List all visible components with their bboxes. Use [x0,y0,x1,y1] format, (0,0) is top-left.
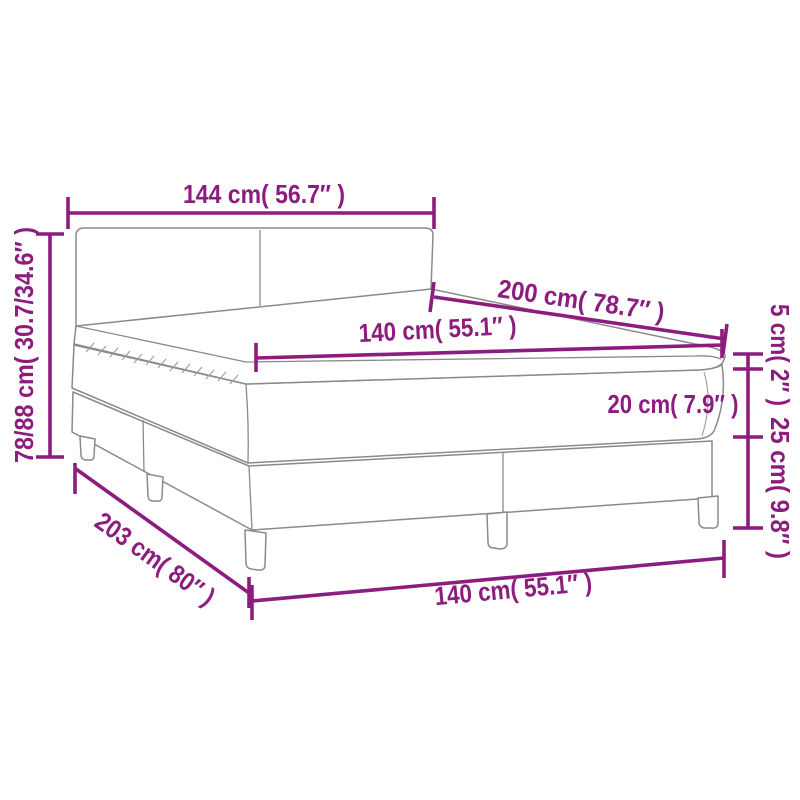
bed-leg [245,530,266,570]
dim-headboard-width-label: 144 cm( 56.7″ ) [183,179,345,209]
dim-mattress-height-label: 20 cm( 7.9″ ) [608,389,739,419]
bed-leg [80,436,95,460]
dim-base-height-label: 25 cm( 9.8″ ) [765,417,795,559]
dim-overall-height-line [36,234,64,457]
dim-overall-height-label: 78/88 cm( 30.7/34.6″ ) [9,227,39,463]
bed-leg [147,474,163,501]
dim-overall-height: 78/88 cm( 30.7/34.6″ ) [9,227,64,463]
dim-right-stack-line [733,354,763,528]
bed-dimension-diagram: 144 cm( 56.7″ ) 78/88 cm( 30.7/34.6″ ) 2… [0,0,800,800]
dim-base-width: 140 cm( 55.1″ ) [252,540,724,620]
dim-base-width-label: 140 cm( 55.1″ ) [433,567,593,611]
dim-topper-height-label: 5 cm( 2″ ) [765,304,795,406]
dim-mattress-height: 20 cm( 7.9″ ) [608,389,739,419]
bed-leg [698,496,718,528]
dim-headboard-width: 144 cm( 56.7″ ) [68,179,434,229]
dim-right-stack: 5 cm( 2″ ) 25 cm( 9.8″ ) [733,304,795,559]
bed-leg [487,512,507,549]
